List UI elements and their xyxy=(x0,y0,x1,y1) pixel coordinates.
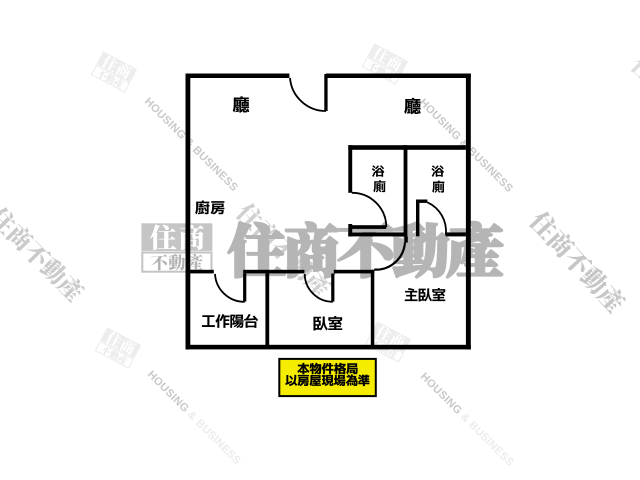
svg-text:HOUSING & BUSINESS: HOUSING & BUSINESS xyxy=(142,96,240,194)
svg-text:HOUSING & BUSINESS: HOUSING & BUSINESS xyxy=(145,369,243,467)
svg-text:HOUSING & BUSINESS: HOUSING & BUSINESS xyxy=(418,371,516,469)
